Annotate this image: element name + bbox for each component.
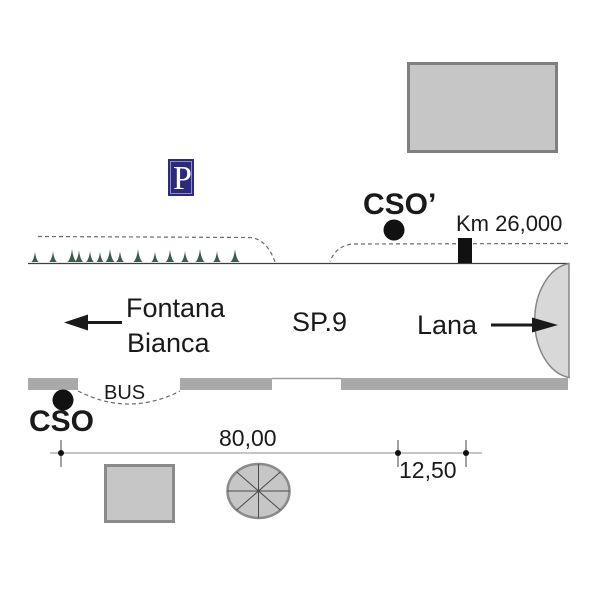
parking-sign-icon: P: [168, 159, 194, 197]
parking-sign-letter: P: [173, 160, 192, 197]
tree-row-icon: [31, 249, 239, 262]
destination-left-line1: Fontana: [126, 293, 226, 323]
road-plan-drawing: P Km 26,000 CSO’ Fontana Bianca SP.9: [0, 0, 600, 600]
boundary-dashed-right: [330, 244, 568, 262]
large-tree-icon: [228, 464, 290, 518]
destination-right-label: Lana: [417, 310, 478, 340]
road-plan-canvas: P Km 26,000 CSO’ Fontana Bianca SP.9: [0, 0, 600, 600]
building-upper: [409, 64, 557, 152]
stop-lower-label: CSO: [29, 405, 94, 438]
destination-left-line2: Bianca: [127, 328, 211, 358]
km-marker-post: [458, 238, 472, 263]
arrow-left-icon: [64, 315, 122, 331]
bus-bay-label: BUS: [104, 382, 145, 404]
building-lower: [106, 466, 174, 522]
km-marker-label: Km 26,000: [456, 211, 562, 236]
road-name-label: SP.9: [292, 307, 347, 337]
stop-upper-dot: [384, 220, 405, 241]
stop-upper-label: CSO’: [363, 188, 436, 221]
dimension-main-label: 80,00: [219, 425, 277, 451]
dimension-secondary-label: 12,50: [399, 457, 457, 483]
